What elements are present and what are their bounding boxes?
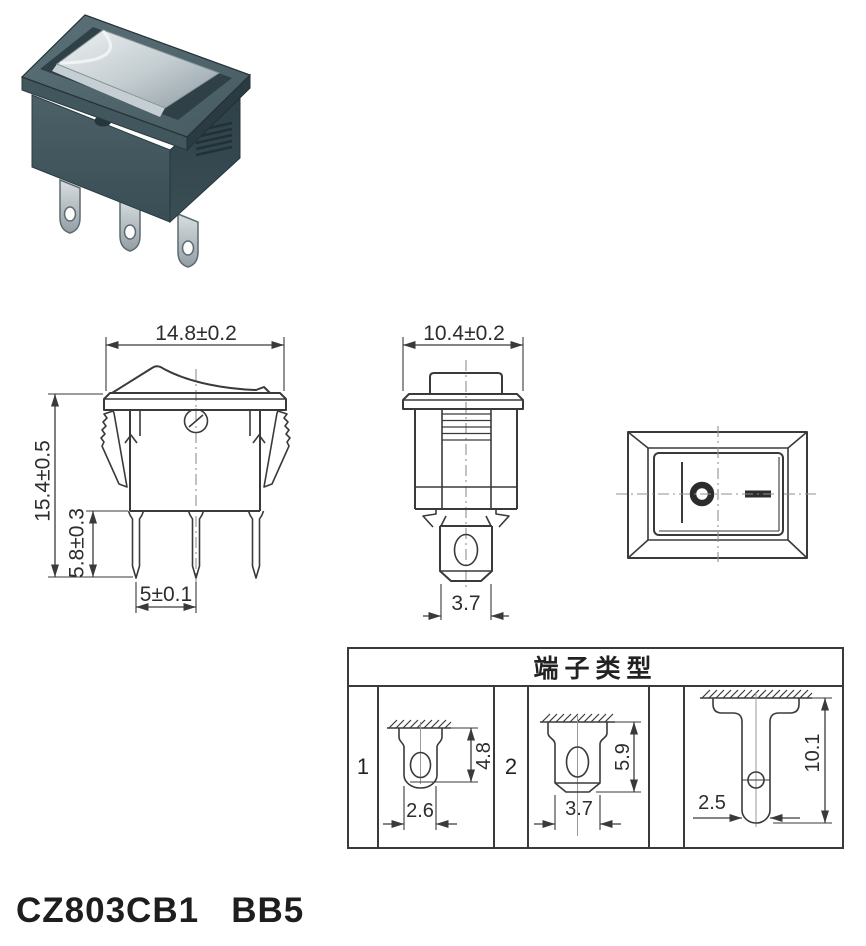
terminal-type-1-label: 1: [349, 687, 377, 847]
terminal-2-drawing: 5.9 3.7: [529, 687, 648, 847]
dim-text-terminal3-width: 2.5: [698, 792, 726, 814]
dim-text-terminal1-width: 2.6: [406, 800, 434, 822]
dim-text-pin-pitch: 5±0.1: [140, 583, 192, 606]
terminal-type-3-cell: 10.1 2.5: [685, 687, 842, 847]
terminal-1-drawing: 4.8 2.6: [379, 687, 493, 847]
rocker-profile: [112, 366, 270, 393]
terminal-type-3-label: [650, 687, 683, 847]
dim-text-side-width: 10.4±0.2: [423, 322, 505, 345]
dim-side-terminal-width: 3.7: [423, 584, 509, 620]
dim-text-front-width: 14.8±0.2: [155, 322, 237, 345]
dim-pin-pitch: 5±0.1: [136, 582, 196, 613]
datasheet-page: 14.8±0.2 15.4±0.5 5.8±0.3 5±0.1: [0, 0, 866, 946]
dim-terminal1-length: 4.8: [410, 728, 493, 782]
model-number-label: CZ803CB1 BB5: [16, 891, 304, 931]
terminal-type-table: 端子类型 1 4.8: [347, 647, 844, 849]
side-view-drawing: 10.4±0.2 3.7: [375, 315, 545, 620]
dim-terminal1-width: 2.6: [383, 786, 457, 830]
dim-text-terminal3-length: 10.1: [802, 734, 824, 773]
dim-text-pin-length: 5.8±0.3: [65, 508, 88, 578]
terminal-hole: [125, 225, 136, 239]
terminal-type-2-cell: 5.9 3.7: [529, 687, 648, 847]
dim-terminal3-length: 10.1: [773, 698, 832, 823]
hatching: [702, 690, 812, 698]
terminal-table-body: 1 4.8: [349, 687, 842, 847]
terminal-table-title: 端子类型: [349, 649, 842, 685]
panel-view-drawing: [615, 420, 825, 570]
terminal-hole: [65, 207, 76, 221]
front-body: [125, 410, 265, 512]
front-view-drawing: 14.8±0.2 15.4±0.5 5.8±0.3 5±0.1: [30, 315, 340, 620]
dim-side-width: 10.4±0.2: [403, 322, 523, 391]
terminal-type-2-label: 2: [495, 687, 527, 847]
terminal-type-1-cell: 4.8 2.6: [379, 687, 493, 847]
dim-text-terminal1-length: 4.8: [473, 742, 493, 770]
terminal-hole: [183, 241, 194, 255]
switch-3d-illustration: [12, 5, 262, 270]
side-flange: [403, 394, 523, 409]
dim-text-side-terminal-width: 3.7: [451, 592, 480, 615]
dim-text-terminal2-length: 5.9: [612, 743, 634, 771]
dim-pin-length: 5.8±0.3: [65, 508, 128, 578]
dim-terminal2-length: 5.9: [596, 722, 641, 792]
mounting-flange: [104, 393, 286, 410]
terminal-3-drawing: 10.1 2.5: [685, 687, 842, 847]
dim-text-front-height: 15.4±0.5: [31, 440, 54, 522]
dim-terminal3-width: 2.5: [693, 792, 800, 818]
dim-text-terminal2-width: 3.7: [565, 798, 593, 820]
